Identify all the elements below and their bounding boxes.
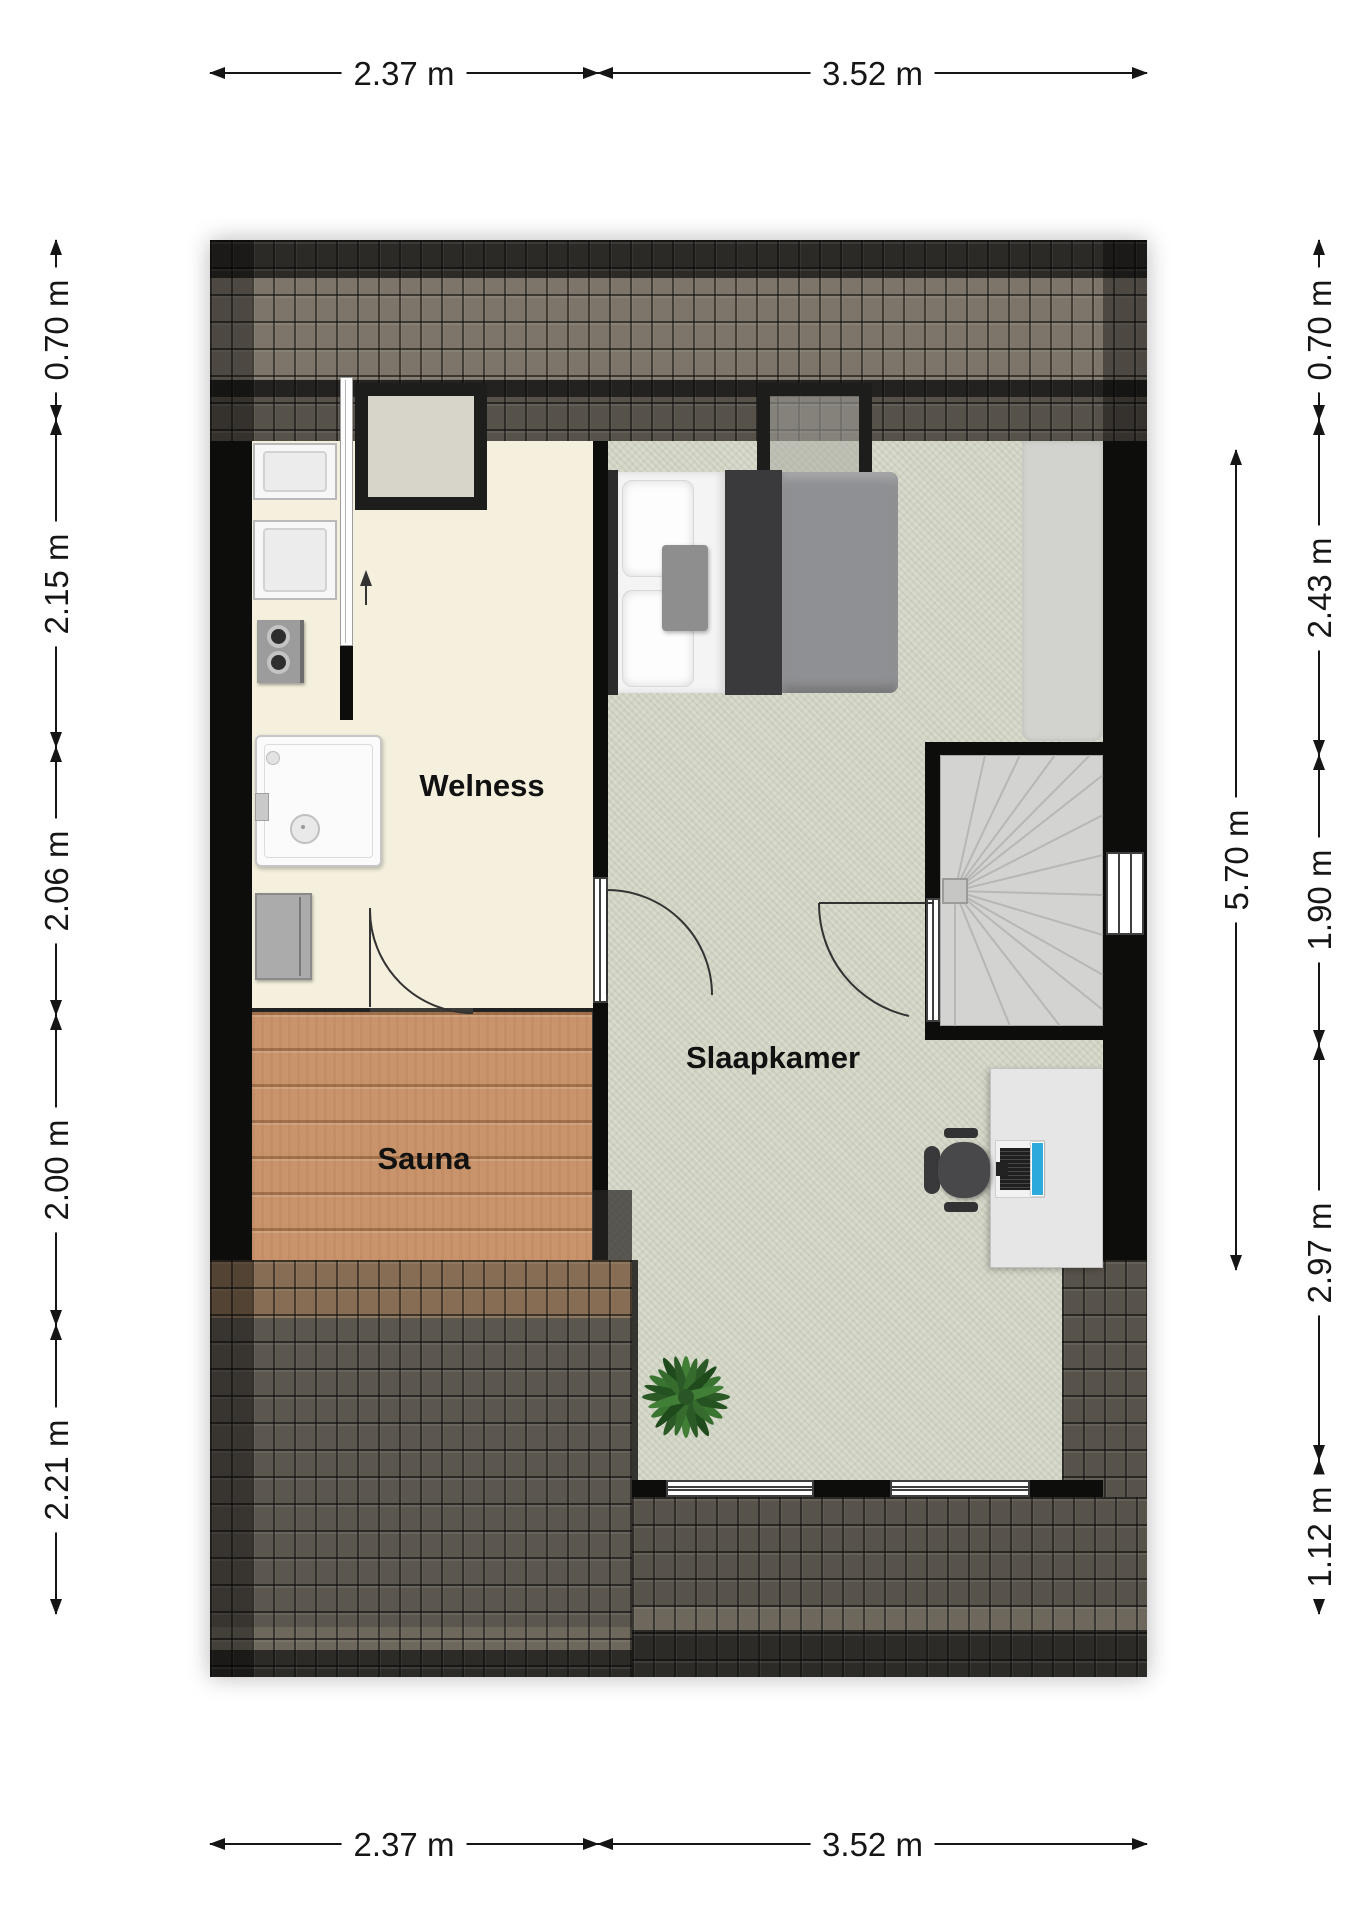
dimension-label: 2.97 m (1299, 1190, 1341, 1315)
dim-top-left: 2.37 m (210, 72, 598, 74)
dim-left-3: 2.06 m (55, 747, 57, 1015)
dimension-label: 2.21 m (36, 1407, 78, 1532)
dimension-label: 1.90 m (1299, 838, 1341, 963)
dim-right-5: 1.12 m (1318, 1460, 1320, 1614)
dimension-label: 2.37 m (342, 53, 467, 95)
dimension-label: 1.12 m (1299, 1475, 1341, 1600)
dim-left-5: 2.21 m (55, 1325, 57, 1614)
room-label-sauna: Sauna (377, 1141, 470, 1177)
door-arc (607, 890, 712, 995)
dim-bottom-left: 2.37 m (210, 1843, 598, 1845)
dimension-label: 5.70 m (1216, 798, 1258, 923)
north-arrow-head (360, 570, 372, 586)
dim-left-2: 2.15 m (55, 420, 57, 747)
dimension-label: 0.70 m (36, 268, 78, 393)
dimension-label: 2.00 m (36, 1108, 78, 1233)
dim-top-right: 3.52 m (598, 72, 1147, 74)
dim-left-4: 2.00 m (55, 1015, 57, 1325)
dim-left-1: 0.70 m (55, 240, 57, 420)
door-swing-overlay (210, 240, 1147, 1677)
dimension-label: 2.06 m (36, 819, 78, 944)
dim-right-3: 1.90 m (1318, 755, 1320, 1045)
dimension-label: 2.15 m (36, 521, 78, 646)
dimension-label: 2.43 m (1299, 525, 1341, 650)
room-label-welness: Welness (419, 768, 544, 804)
dim-inner-height: 5.70 m (1235, 450, 1237, 1270)
dimension-label: 3.52 m (810, 53, 935, 95)
dimension-label: 3.52 m (810, 1824, 935, 1866)
dim-right-4: 2.97 m (1318, 1045, 1320, 1460)
dimension-label: 2.37 m (342, 1824, 467, 1866)
door-arc (819, 903, 909, 1016)
room-label-slaapkamer: Slaapkamer (686, 1040, 860, 1076)
dim-right-1: 0.70 m (1318, 240, 1320, 420)
dim-bottom-right: 3.52 m (598, 1843, 1147, 1845)
dim-right-2: 2.43 m (1318, 420, 1320, 755)
floorplan: Welness Sauna Slaapkamer (210, 240, 1147, 1677)
floorplan-page: 2.37 m 3.52 m 2.37 m 3.52 m 0.70 m 2.15 … (0, 0, 1358, 1920)
door-arc (370, 910, 473, 1013)
dimension-label: 0.70 m (1299, 268, 1341, 393)
